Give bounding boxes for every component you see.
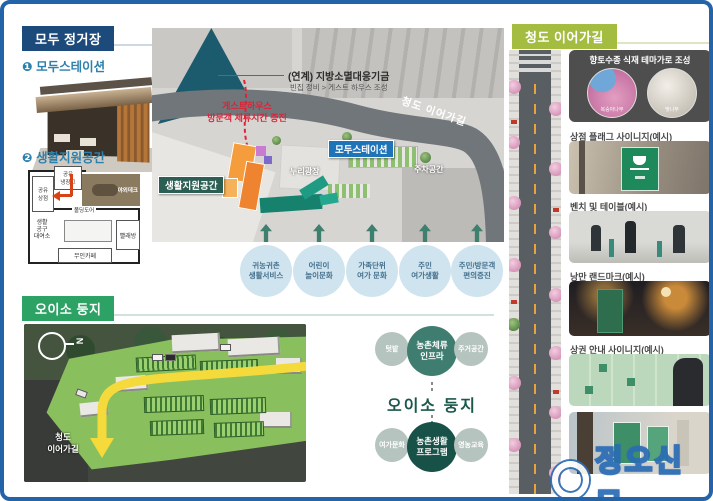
wall — [28, 170, 30, 264]
yellow-road-path — [102, 366, 306, 440]
table-post — [609, 239, 614, 257]
deck-table — [92, 184, 118, 196]
pink-tree-icon — [549, 102, 561, 116]
pink-tree-icon — [549, 288, 561, 302]
signpost — [579, 141, 585, 194]
subsection-1: ❶ 모두스테이션 — [22, 56, 105, 75]
person-silhouette — [673, 225, 685, 253]
flag-sign — [621, 147, 659, 191]
entry-arrow-stem — [60, 194, 72, 197]
shared-shop-room: 공유 상점 — [32, 176, 54, 212]
theme-street-title: 향토수종 식재 테마가로 조성 — [569, 54, 711, 66]
section-title-modu-station: 모두 정거장 — [22, 26, 114, 51]
diagram-circle-infra: 농촌체류 인프라 — [407, 326, 457, 376]
entry-arrow-head — [52, 191, 60, 201]
cherry-tree-label: 벚나무 — [648, 106, 696, 113]
oiso-site-map: N 청도 이어가길 — [24, 324, 306, 482]
tool-rental-label: 생활 공구 대여소 — [30, 220, 54, 242]
annotation-line — [218, 75, 284, 76]
coffee-cup-icon — [633, 156, 646, 165]
life-support-floorplan: 야외데크 공유 냉장고 공유 상점 폴딩도어 생활 공구 대여소 무인카페 빨래… — [24, 164, 148, 270]
sidewalk-right — [551, 50, 561, 494]
person-silhouette — [591, 225, 601, 251]
table-post — [657, 241, 662, 257]
center-line — [534, 74, 536, 494]
saucer-icon — [630, 168, 649, 170]
cafe-table — [80, 138, 96, 146]
sidewalk-left — [509, 50, 519, 494]
pink-tree-icon — [549, 406, 561, 419]
car-icon — [220, 344, 231, 351]
guesthouse-note: 게스트하우스 방문객 체류시간 증진 — [182, 100, 312, 124]
bench-icon — [553, 390, 559, 394]
yellow-route — [24, 324, 306, 482]
effect-circle: 귀농귀촌 생활서비스 — [240, 245, 292, 297]
theme-street-card: 향토수종 식재 테마가로 조성 복숭아나무 벚나무 — [569, 50, 711, 122]
bench-icon — [553, 208, 559, 212]
section-title-street: 청도 이어가길 — [512, 24, 617, 49]
effect-circle: 주민 여가생활 — [399, 245, 451, 297]
car-icon — [165, 354, 176, 361]
plaza-label: 누리광장 — [290, 166, 319, 177]
dashed-connector — [431, 379, 433, 391]
diagram-circle-leisure: 여가문화 — [375, 428, 409, 462]
subsection-2-label: 생활지원공간 — [36, 151, 105, 165]
sign-text-line — [635, 176, 645, 179]
deck-label: 야외데크 — [118, 186, 138, 194]
landmark-photo — [569, 281, 711, 336]
watermark: 정오신문 — [552, 436, 709, 501]
fund-title: (연계) 지방소멸대응기금 — [288, 68, 389, 83]
map-cell — [599, 364, 607, 372]
north-arrow-line — [64, 343, 74, 345]
fund-subtitle: 빈집 정비 > 게스트 하우스 조성 — [290, 82, 388, 93]
person-silhouette — [625, 221, 636, 253]
circled-1-icon: ❶ — [22, 60, 33, 74]
effect-circle: 어린이 놀이문화 — [293, 245, 345, 297]
diagram-circle-education: 영농교육 — [454, 428, 488, 462]
bench-icon — [511, 300, 517, 304]
entry-arrow-stem — [70, 174, 73, 196]
green-booth — [597, 289, 623, 333]
newspaper-logo-icon — [552, 461, 589, 499]
tree-icon — [272, 136, 281, 145]
plan-board: 모두 정거장 ❶ 모두스테이션 ❷ 생활지원공간 야외데크 공유 냉장고 공유 … — [0, 0, 713, 501]
bench-table-photo — [569, 211, 711, 263]
car-icon — [152, 354, 163, 361]
guide-signage-photo — [569, 354, 711, 406]
diagram-circle-garden: 텃밭 — [375, 332, 409, 366]
effect-circle: 주민/방문객 편의증진 — [451, 245, 503, 297]
cherry-tree-photo: 벚나무 — [647, 68, 697, 118]
laundry-room: 빨래방 — [116, 220, 140, 250]
lamp-glow — [661, 287, 671, 297]
effect-circle: 가족단위 여가 문화 — [346, 245, 398, 297]
flag-signage-photo — [569, 141, 711, 194]
program-block — [256, 146, 266, 156]
street-illustration — [509, 50, 561, 494]
subsection-1-label: 모두스테이션 — [36, 60, 105, 74]
yellow-arrow-head — [90, 438, 114, 458]
pink-tree-icon — [549, 346, 561, 360]
unmanned-cafe-room: 무인카페 — [58, 248, 112, 263]
station-map-label: 모두스테이션 — [328, 140, 394, 158]
section-title-oiso: 오이소 둥지 — [22, 296, 114, 321]
cafe-table — [54, 134, 70, 142]
map-cell — [585, 386, 593, 394]
parking-label: 주차공간 — [414, 164, 443, 175]
pink-tree-icon — [549, 226, 561, 239]
main-site-map: (연계) 지방소멸대응기금 빈집 정비 > 게스트 하우스 조성 게스트하우스 … — [152, 28, 504, 242]
shared-fridge-room: 공유 냉장고 — [54, 166, 82, 190]
peach-tree-label: 복숭아나무 — [588, 106, 636, 113]
circled-2-icon: ❷ — [22, 151, 33, 165]
oiso-road-label: 청도 이어가길 — [38, 432, 88, 456]
north-label: N — [74, 338, 84, 345]
road-network — [152, 28, 504, 242]
bench-icon — [511, 120, 517, 124]
community-table — [64, 220, 112, 242]
folding-door-label: 폴딩도어 — [72, 206, 96, 214]
crosswalk — [519, 54, 551, 72]
outdoor-deck: 야외데크 — [82, 174, 140, 206]
north-arrow-icon — [38, 332, 66, 360]
map-cell — [627, 378, 635, 386]
diagram-circle-housing: 주거공간 — [454, 332, 488, 366]
diagram-circle-program: 농촌생활 프로그램 — [407, 422, 457, 472]
program-block — [264, 156, 272, 164]
peach-tree-photo: 복숭아나무 — [587, 68, 637, 118]
tree-icon — [420, 152, 431, 163]
pink-tree-icon — [549, 162, 561, 176]
life-map-label: 생활지원공간 — [158, 176, 224, 194]
person-viewing — [673, 358, 703, 406]
watermark-text: 정오신문 — [595, 436, 709, 501]
